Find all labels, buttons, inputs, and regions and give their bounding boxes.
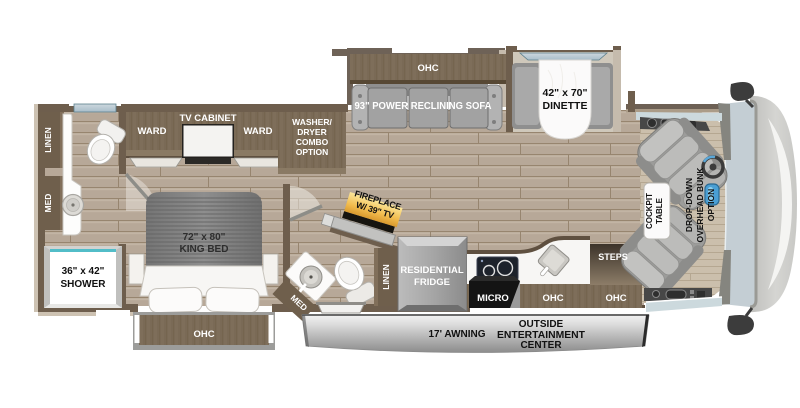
svg-text:WASHER/: WASHER/ bbox=[292, 117, 332, 127]
svg-text:WARD: WARD bbox=[137, 126, 166, 137]
svg-text:KING BED: KING BED bbox=[180, 244, 229, 255]
svg-text:COMBO: COMBO bbox=[296, 137, 329, 147]
svg-text:93" POWER RECLINING SOFA: 93" POWER RECLINING SOFA bbox=[355, 101, 492, 112]
svg-text:42" x 70": 42" x 70" bbox=[543, 87, 588, 99]
svg-text:OHC: OHC bbox=[542, 293, 563, 304]
svg-text:LINEN: LINEN bbox=[381, 264, 391, 290]
svg-text:SHOWER: SHOWER bbox=[61, 279, 107, 290]
svg-text:OPTION: OPTION bbox=[296, 147, 329, 157]
svg-text:STEPS: STEPS bbox=[598, 252, 628, 262]
svg-text:DROP-DOWN: DROP-DOWN bbox=[684, 178, 694, 232]
svg-text:COCKPIT: COCKPIT bbox=[645, 193, 654, 229]
svg-text:OUTSIDE: OUTSIDE bbox=[519, 319, 564, 330]
svg-text:OHC: OHC bbox=[605, 293, 626, 304]
svg-text:CENTER: CENTER bbox=[520, 340, 562, 351]
svg-text:WARD: WARD bbox=[243, 126, 272, 137]
svg-text:36" x 42": 36" x 42" bbox=[62, 266, 105, 277]
svg-text:72" x 80": 72" x 80" bbox=[183, 232, 226, 243]
svg-text:TV CABINET: TV CABINET bbox=[180, 113, 237, 124]
svg-text:FRIDGE: FRIDGE bbox=[414, 277, 450, 288]
svg-text:LINEN: LINEN bbox=[43, 127, 53, 153]
svg-text:MED: MED bbox=[43, 194, 53, 213]
svg-text:RESIDENTIAL: RESIDENTIAL bbox=[400, 265, 464, 276]
svg-text:MICRO: MICRO bbox=[477, 293, 509, 304]
svg-text:DINETTE: DINETTE bbox=[543, 100, 588, 112]
svg-text:OHC: OHC bbox=[417, 63, 438, 74]
svg-text:OHC: OHC bbox=[193, 329, 214, 340]
svg-text:TABLE: TABLE bbox=[655, 197, 664, 224]
svg-text:OVERHEAD BUNK: OVERHEAD BUNK bbox=[695, 167, 705, 243]
svg-text:17' AWNING: 17' AWNING bbox=[428, 329, 485, 340]
svg-text:OPTION: OPTION bbox=[706, 189, 716, 222]
svg-text:DRYER: DRYER bbox=[297, 127, 326, 137]
